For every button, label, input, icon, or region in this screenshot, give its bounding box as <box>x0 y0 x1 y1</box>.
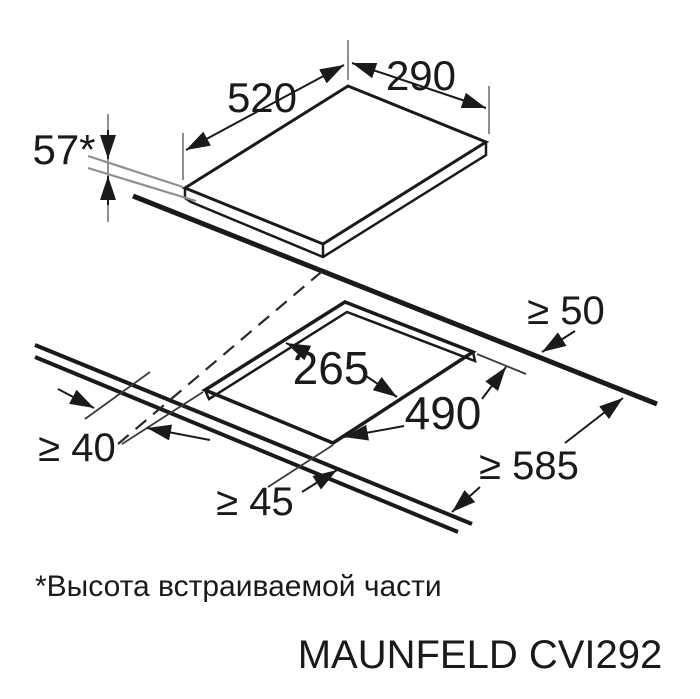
model-name-text: MAUNFELD CVI292 <box>298 633 663 677</box>
hob-depth-label: 520 <box>227 74 297 121</box>
dimension-hob-depth: 520 <box>183 40 348 180</box>
clearance-side-label: ≥ 40 <box>38 426 116 470</box>
dimension-clearance-rear: ≥ 50 <box>527 289 605 352</box>
footnote-text: *Высота встраиваемой части <box>35 570 442 603</box>
dimension-hob-width: 290 <box>352 52 489 134</box>
counter-depth-label: ≥ 585 <box>479 444 579 488</box>
dimension-cutout-width: 265 <box>286 342 397 397</box>
cutout-rear-extension-line <box>477 354 526 374</box>
dimension-clearance-front: ≥ 45 <box>216 470 337 524</box>
installation-diagram-page: 520 290 57* <box>0 0 700 699</box>
technical-drawing: 520 290 57* <box>0 0 700 699</box>
cutout-width-label: 265 <box>293 342 370 394</box>
cutout-depth-label: 490 <box>405 387 482 439</box>
dimension-clearance-side: ≥ 40 <box>38 372 210 470</box>
builtin-height-label: 57* <box>32 126 95 173</box>
dimension-builtin-height: 57* <box>32 114 196 222</box>
hob-width-label: 290 <box>386 52 456 99</box>
clearance-rear-label: ≥ 50 <box>527 289 605 333</box>
clearance-front-label: ≥ 45 <box>216 480 294 524</box>
